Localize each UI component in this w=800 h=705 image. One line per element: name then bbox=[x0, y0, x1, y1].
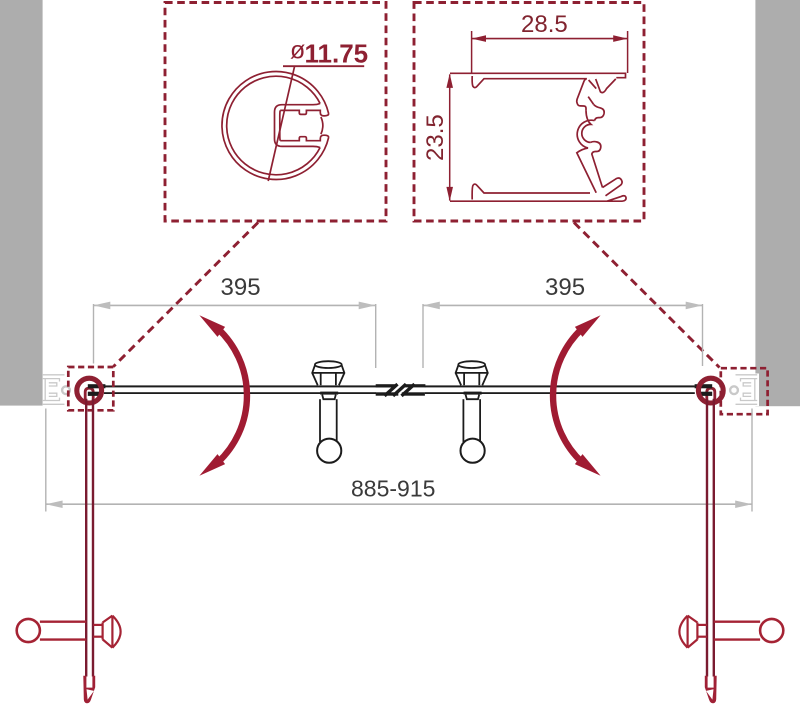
svg-text:23.5: 23.5 bbox=[422, 114, 449, 161]
svg-text:ø: ø bbox=[290, 37, 305, 65]
svg-text:11.75: 11.75 bbox=[305, 38, 369, 68]
svg-text:885-915: 885-915 bbox=[351, 476, 435, 502]
svg-text:395: 395 bbox=[545, 274, 585, 301]
svg-text:395: 395 bbox=[221, 274, 261, 301]
svg-text:28.5: 28.5 bbox=[521, 11, 568, 38]
